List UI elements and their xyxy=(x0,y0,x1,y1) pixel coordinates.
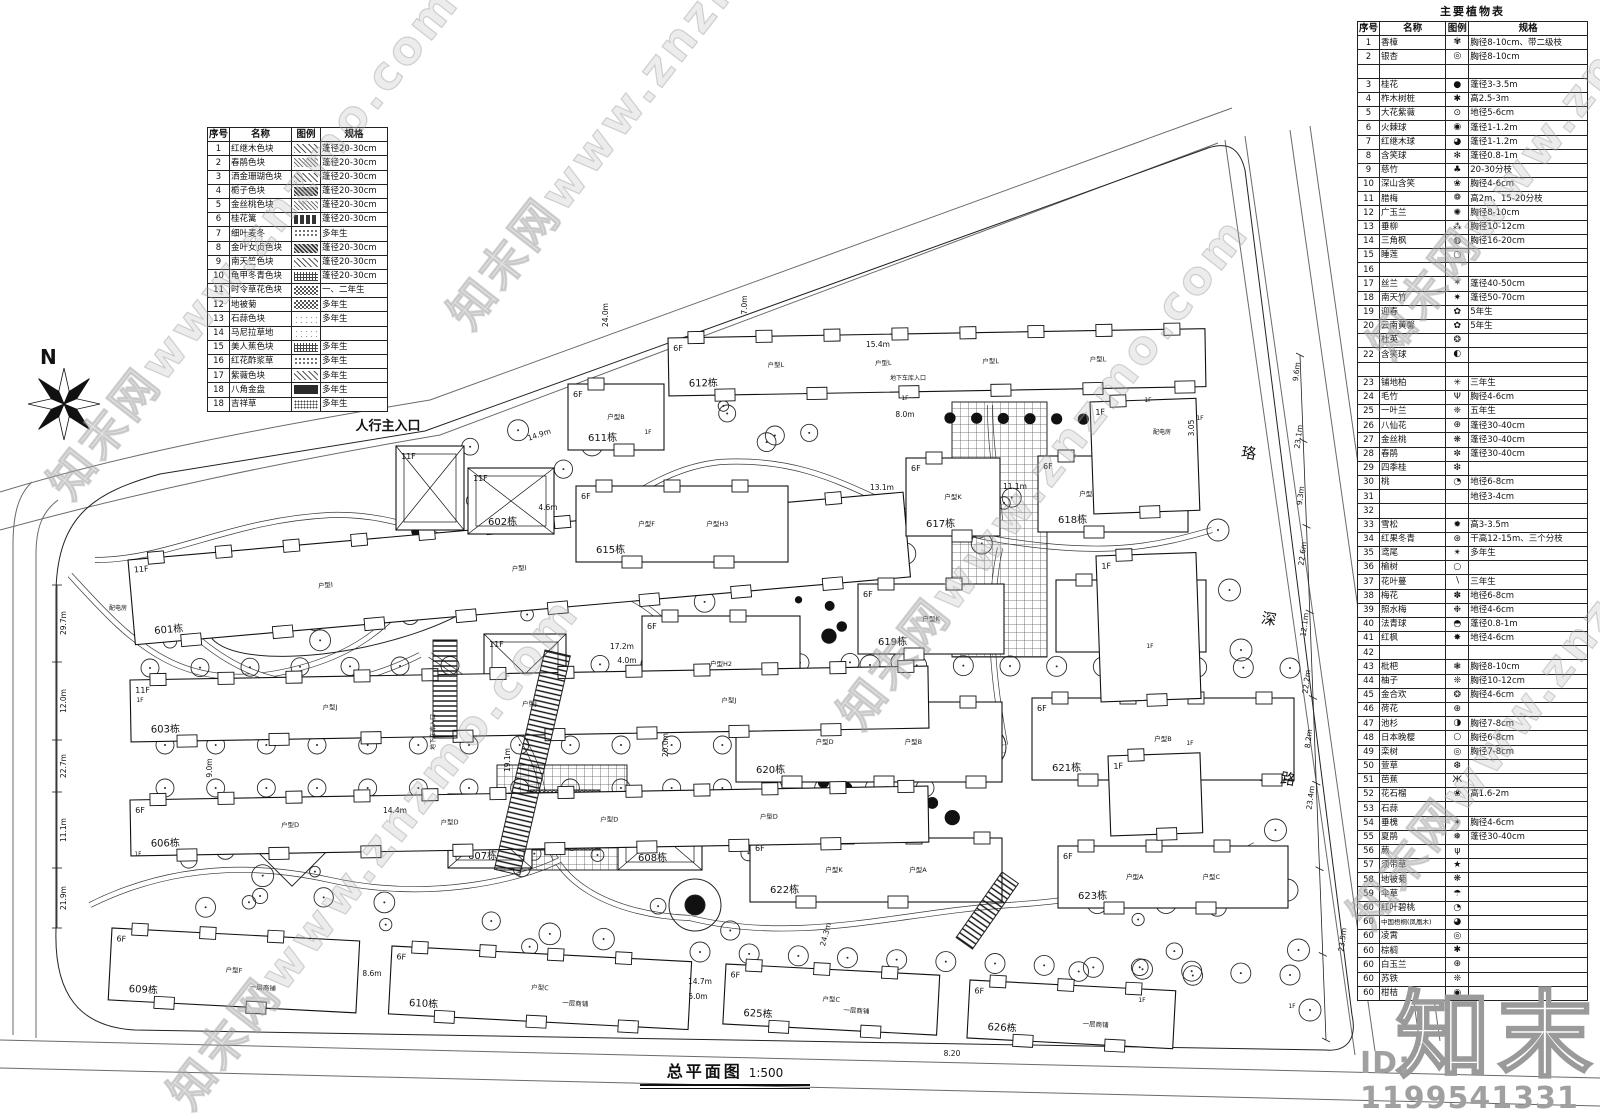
svg-text:8.6m: 8.6m xyxy=(362,969,381,978)
plant-symbol-icon: ❉ xyxy=(1446,603,1469,617)
svg-text:配电房: 配电房 xyxy=(1153,428,1171,436)
plant-symbol-icon: ❀ xyxy=(1446,178,1469,192)
plant-row xyxy=(1358,362,1588,376)
plant-symbol-icon: ◎ xyxy=(1446,745,1469,759)
plant-symbol-icon: ★ xyxy=(1446,859,1469,873)
plant-row: 20云南黄馨✿5年生 xyxy=(1358,319,1588,333)
svg-text:户型D: 户型D xyxy=(760,812,778,821)
legend-swatch-grid xyxy=(294,343,318,352)
plant-symbol-icon: ✻ xyxy=(1446,149,1469,163)
legend-swatch-dense xyxy=(294,187,318,196)
legend-header: 名称 xyxy=(230,128,292,142)
legend-table: 序号名称图例规格1红继木色块蓬径20-30cm2春鹃色块蓬径20-30cm3洒金… xyxy=(207,127,388,412)
legend-row: 2春鹃色块蓬径20-30cm xyxy=(208,156,388,170)
plant-row: 43枇杷❃胸径8-10cm xyxy=(1358,660,1588,674)
plant-row: 11腊梅❁高2m、15-20分枝 xyxy=(1358,192,1588,206)
plant-symbol-icon: ❆ xyxy=(1446,759,1469,773)
plant-row: 34红果冬青⊛干高12-15m、三个分枝 xyxy=(1358,532,1588,546)
plant-symbol-icon: ◐ xyxy=(1446,348,1469,362)
plant-symbol-icon: ◓ xyxy=(1446,617,1469,631)
svg-text:户型B: 户型B xyxy=(905,737,922,746)
legend-row: 13石蒜色块多年生 xyxy=(208,312,388,326)
image-id-text: ID: 1199541331 xyxy=(1360,1046,1600,1116)
svg-text:户型L: 户型L xyxy=(982,356,999,365)
plant-row: 50萱草❆ xyxy=(1358,759,1588,773)
legend-swatch-speck xyxy=(294,329,318,338)
plant-row: 2银杏◎胸径8-10cm xyxy=(1358,50,1588,64)
svg-text:配电房: 配电房 xyxy=(109,604,127,612)
svg-text:12.0m: 12.0m xyxy=(59,689,68,713)
legend-swatch-hatch2 xyxy=(294,201,318,210)
plant-symbol-icon: Ψ xyxy=(1446,390,1469,404)
plant-row: 35鸢尾✴多年生 xyxy=(1358,546,1588,560)
svg-text:户型L: 户型L xyxy=(767,360,784,369)
svg-text:户型F: 户型F xyxy=(225,965,242,975)
legend-swatch-check xyxy=(294,300,318,309)
plant-row: 49栾树◎胸径7-8cm xyxy=(1358,745,1588,759)
svg-text:6F: 6F xyxy=(1037,704,1047,713)
svg-text:615栋: 615栋 xyxy=(596,543,625,556)
svg-text:4.0m: 4.0m xyxy=(617,656,636,665)
svg-text:1F: 1F xyxy=(1288,1003,1296,1010)
svg-text:1F: 1F xyxy=(136,697,144,704)
plant-row: 60中国梧桐(凤凰木)◕ xyxy=(1358,915,1588,929)
plant-symbol-icon xyxy=(1446,64,1469,78)
svg-text:深: 深 xyxy=(1260,609,1278,629)
plant-symbol-icon: ❋ xyxy=(1446,433,1469,447)
legend-header: 规格 xyxy=(321,128,388,142)
plant-symbol-icon: ✾ xyxy=(1446,36,1469,50)
svg-text:户型F: 户型F xyxy=(638,519,655,528)
plant-symbol-icon: ◕ xyxy=(1446,135,1469,149)
legend-swatch-dotsf xyxy=(294,400,318,409)
svg-text:1F: 1F xyxy=(1144,397,1152,404)
svg-text:人行主入口: 人行主入口 xyxy=(355,418,420,434)
plant-symbol-icon: ◎ xyxy=(1446,930,1469,944)
legend-row: 4栀子色块蓬径20-30cm xyxy=(208,184,388,198)
plant-symbol-icon: ✽ xyxy=(1446,589,1469,603)
plant-symbol-icon: ✴ xyxy=(1446,546,1469,560)
svg-text:23.1m: 23.1m xyxy=(1293,424,1305,449)
svg-text:户型I: 户型I xyxy=(318,580,334,590)
svg-text:户型L: 户型L xyxy=(1090,354,1107,363)
plant-row: 32 xyxy=(1358,504,1588,518)
plant-table: 主要植物表 序号名称图例规格1香樟✾胸径8-10cm、带二级枝2银杏◎胸径8-1… xyxy=(1357,3,1588,1001)
svg-text:1F: 1F xyxy=(1186,740,1194,747)
plant-symbol-icon: ● xyxy=(1446,78,1469,92)
sheet-scale: 1:500 xyxy=(749,1066,784,1080)
plant-row: 60白玉兰⊕ xyxy=(1358,958,1588,972)
plant-symbol-icon: ⊙ xyxy=(1446,107,1469,121)
legend-row: 8金叶女贞色块蓬径20-30cm xyxy=(208,241,388,255)
plant-row: 30桃◔地径6-8cm xyxy=(1358,476,1588,490)
legend-row: 1红继木色块蓬径20-30cm xyxy=(208,142,388,156)
svg-text:N: N xyxy=(40,345,57,369)
svg-text:1F: 1F xyxy=(1196,415,1204,422)
plant-row: 59伞草☂ xyxy=(1358,887,1588,901)
svg-text:户型C: 户型C xyxy=(1203,872,1221,881)
legend-row: 7细叶麦冬多年生 xyxy=(208,227,388,241)
svg-text:6F: 6F xyxy=(911,464,921,473)
plant-symbol-icon: ✺ xyxy=(1446,206,1469,220)
plant-symbol-icon xyxy=(1446,802,1469,816)
plant-row: 60棕榈✱ xyxy=(1358,944,1588,958)
legend-swatch-hatch xyxy=(294,258,318,267)
svg-text:户型A: 户型A xyxy=(909,865,927,874)
plant-symbol-icon: ⊕ xyxy=(1446,958,1469,972)
svg-text:8.20: 8.20 xyxy=(944,1049,961,1058)
svg-text:12.1m: 12.1m xyxy=(1299,612,1311,637)
svg-text:14.4m: 14.4m xyxy=(383,806,407,815)
plant-row: 6火棘球◉蓬径1-1.2m xyxy=(1358,121,1588,135)
legend-row: 16红花酢浆草多年生 xyxy=(208,355,388,369)
svg-text:620栋: 620栋 xyxy=(756,763,785,776)
plant-table-title: 主要植物表 xyxy=(1357,3,1588,19)
svg-text:一层商铺: 一层商铺 xyxy=(250,982,277,992)
plant-symbol-icon: ❀ xyxy=(1446,788,1469,802)
plant-symbol-icon xyxy=(1446,504,1469,518)
title-underline xyxy=(640,1084,810,1086)
svg-text:11F: 11F xyxy=(489,640,504,649)
plant-row: 1香樟✾胸径8-10cm、带二级枝 xyxy=(1358,36,1588,50)
plant-symbol-icon: ❅ xyxy=(1446,830,1469,844)
legend-table: 序号名称图例规格1红继木色块蓬径20-30cm2春鹃色块蓬径20-30cm3洒金… xyxy=(207,127,388,412)
plant-symbol-icon: ◔ xyxy=(1446,476,1469,490)
svg-text:户型D: 户型D xyxy=(600,814,618,823)
svg-text:619栋: 619栋 xyxy=(878,635,907,648)
plant-row: 38梅花✽地径6-8cm xyxy=(1358,589,1588,603)
plant-row: 47池杉◑胸径7-8cm xyxy=(1358,717,1588,731)
svg-text:1F: 1F xyxy=(1113,761,1123,770)
plant-row: 56蕨ψ xyxy=(1358,844,1588,858)
legend-swatch-solid xyxy=(294,385,318,394)
plant-symbol-icon: ◍ xyxy=(1446,234,1469,248)
plant-row: 16 xyxy=(1358,263,1588,277)
svg-text:20.0m: 20.0m xyxy=(661,733,670,757)
svg-text:1F: 1F xyxy=(901,395,909,402)
plant-row: 52花石榴❀高1.6-2m xyxy=(1358,788,1588,802)
svg-text:6F: 6F xyxy=(730,970,741,980)
svg-text:11F: 11F xyxy=(135,686,150,695)
plant-symbol-icon: ○ xyxy=(1446,561,1469,575)
plant-row: 14三角枫◍胸径16-20cm xyxy=(1358,234,1588,248)
svg-text:6F: 6F xyxy=(863,590,873,599)
svg-text:户型K: 户型K xyxy=(944,492,962,501)
legend-swatch-hatch xyxy=(294,371,318,380)
legend-swatch-dots xyxy=(294,229,318,238)
plant-symbol-icon: ⊛ xyxy=(1446,532,1469,546)
svg-text:6F: 6F xyxy=(974,986,985,996)
svg-text:1F: 1F xyxy=(1138,997,1146,1004)
svg-text:618栋: 618栋 xyxy=(1058,513,1087,526)
svg-text:户型C: 户型C xyxy=(531,982,549,992)
plant-header: 序号 xyxy=(1358,22,1380,36)
legend-row: 12地被菊多年生 xyxy=(208,298,388,312)
legend-header: 图例 xyxy=(292,128,321,142)
svg-text:11.1m: 11.1m xyxy=(59,818,68,842)
svg-text:户型D: 户型D xyxy=(441,817,459,826)
plant-row: 28春鹃✼蓬径30-40cm xyxy=(1358,447,1588,461)
plant-symbol-icon: ∖ xyxy=(1446,575,1469,589)
plant-symbol-icon xyxy=(1446,362,1469,376)
svg-text:户型K: 户型K xyxy=(825,865,843,874)
plant-header: 图例 xyxy=(1446,22,1469,36)
legend-swatch-speck xyxy=(294,315,318,324)
plant-row: 5大花紫薇⊙地径5-6cm xyxy=(1358,107,1588,121)
plant-symbol-icon: ❁ xyxy=(1446,192,1469,206)
plant-row: 10深山含笑❀胸径4-6cm xyxy=(1358,178,1588,192)
plant-row: 24毛竹Ψ胸径4-6cm xyxy=(1358,390,1588,404)
plant-symbol-icon: Ж xyxy=(1446,773,1469,787)
plant-row: 55夏鹃❅蓬径30-40cm xyxy=(1358,830,1588,844)
plant-header: 规格 xyxy=(1469,22,1588,36)
svg-text:9.0m: 9.0m xyxy=(205,758,214,777)
plant-row: 26八仙花⊕蓬径30-40cm xyxy=(1358,419,1588,433)
svg-text:622栋: 622栋 xyxy=(770,883,799,896)
svg-text:4.6m: 4.6m xyxy=(538,503,557,512)
plant-row: 51芭蕉Ж xyxy=(1358,773,1588,787)
legend-header: 序号 xyxy=(208,128,230,142)
svg-text:23.4m: 23.4m xyxy=(1305,785,1317,810)
plant-symbol-icon: ⊕ xyxy=(1446,703,1469,717)
plant-row: 17丝兰✶蓬径40-50cm xyxy=(1358,277,1588,291)
svg-text:621栋: 621栋 xyxy=(1052,761,1081,774)
svg-text:户型A: 户型A xyxy=(1126,872,1144,881)
plant-symbol-icon: ⁂ xyxy=(1446,220,1469,234)
legend-row: 18八角金盘多年生 xyxy=(208,383,388,397)
plant-symbol-icon: ◉ xyxy=(1446,121,1469,135)
svg-text:8.2m: 8.2m xyxy=(1303,729,1314,749)
plant-row: 53石蒜 xyxy=(1358,802,1588,816)
plant-row: 19迎春✿5年生 xyxy=(1358,305,1588,319)
svg-text:22.6m: 22.6m xyxy=(1297,541,1309,566)
svg-text:1F: 1F xyxy=(1095,407,1105,416)
plant-symbol-icon: ❊ xyxy=(1446,972,1469,986)
plant-row: 3桂花●蓬径3-3.5m xyxy=(1358,78,1588,92)
svg-text:一层商铺: 一层商铺 xyxy=(843,1005,870,1015)
plant-row: 9慈竹♣20-30分枝 xyxy=(1358,163,1588,177)
svg-text:5.0m: 5.0m xyxy=(688,992,707,1001)
plant-symbol-icon: ❇ xyxy=(1446,461,1469,475)
plant-symbol-icon: ✳ xyxy=(1446,376,1469,390)
svg-text:23.5m: 23.5m xyxy=(1337,927,1349,952)
plant-row: 37花叶蔓∖三年生 xyxy=(1358,575,1588,589)
legend-row: 5金丝桃色块蓬径20-30cm xyxy=(208,198,388,212)
svg-text:一层商铺: 一层商铺 xyxy=(1082,1019,1109,1029)
plant-row: 22含笑球◐ xyxy=(1358,348,1588,362)
legend-swatch-check xyxy=(294,286,318,295)
legend-swatch-grid xyxy=(294,272,318,281)
plant-row: 23铺地柏✳三年生 xyxy=(1358,376,1588,390)
plant-symbol-icon: ψ xyxy=(1446,844,1469,858)
plant-row: 13垂柳⁂胸径10-12cm xyxy=(1358,220,1588,234)
svg-text:15.4m: 15.4m xyxy=(866,340,890,349)
plant-symbol-icon: ⊕ xyxy=(1446,419,1469,433)
plant-symbol-icon: ❃ xyxy=(1446,660,1469,674)
plant-row xyxy=(1358,64,1588,78)
svg-text:14.7m: 14.7m xyxy=(688,977,712,986)
svg-text:6F: 6F xyxy=(573,390,583,399)
plant-row: 27金丝桃❋蓬径30-40cm xyxy=(1358,433,1588,447)
legend-row: 10龟甲冬青色块蓬径20-30cm xyxy=(208,269,388,283)
legend-swatch-hatch xyxy=(294,173,318,182)
svg-text:户型D: 户型D xyxy=(281,820,299,829)
plant-row: 杜英❂ xyxy=(1358,334,1588,348)
svg-text:户型J: 户型J xyxy=(322,702,337,711)
legend-row: 14马尼拉草地 xyxy=(208,326,388,340)
plant-symbol-icon: ❂ xyxy=(1446,688,1469,702)
plant-symbol-icon: ◕ xyxy=(1446,915,1469,929)
plant-symbol-icon: ✿ xyxy=(1446,305,1469,319)
svg-text:6F: 6F xyxy=(673,344,683,353)
plant-row: 31地径3-4cm xyxy=(1358,490,1588,504)
plant-symbol-icon: ◔ xyxy=(1446,901,1469,915)
plant-symbol-icon: ◑ xyxy=(1446,717,1469,731)
plant-row: 60苏铁❊ xyxy=(1358,972,1588,986)
svg-text:29.7m: 29.7m xyxy=(59,611,68,635)
plant-row: 36榆树○ xyxy=(1358,561,1588,575)
legend-swatch-dots xyxy=(294,357,318,366)
plant-row: 39照水梅❉地径4-6cm xyxy=(1358,603,1588,617)
legend-swatch-dash xyxy=(294,215,318,224)
plant-symbol-icon xyxy=(1446,490,1469,504)
plant-symbol-icon: ✱ xyxy=(1446,944,1469,958)
svg-text:9.3m: 9.3m xyxy=(1295,486,1306,506)
plant-symbol-icon: ❋ xyxy=(1446,873,1469,887)
plant-row: 7红继木球◕蓬径1-1.2m xyxy=(1358,135,1588,149)
plant-row: 8含笑球✻蓬径0.8-1m xyxy=(1358,149,1588,163)
plant-row: 44柚子❊胸径10-12cm xyxy=(1358,674,1588,688)
plant-row: 4柞木树桩✱高2.5-3m xyxy=(1358,92,1588,106)
svg-text:617栋: 617栋 xyxy=(926,517,955,530)
plant-header: 名称 xyxy=(1380,22,1446,36)
plant-symbol-icon: ♣ xyxy=(1446,163,1469,177)
svg-text:606栋: 606栋 xyxy=(151,836,180,850)
plant-row: 29四季桂❇ xyxy=(1358,461,1588,475)
svg-text:一层商铺: 一层商铺 xyxy=(562,998,589,1008)
plant-row: 57须带草★ xyxy=(1358,859,1588,873)
svg-text:户型H3: 户型H3 xyxy=(706,519,728,528)
plant-symbol-icon xyxy=(1446,263,1469,277)
svg-text:623栋: 623栋 xyxy=(1078,889,1107,902)
plant-symbol-icon xyxy=(1446,646,1469,660)
svg-text:6F: 6F xyxy=(116,934,127,944)
plant-symbol-icon: ◎ xyxy=(1446,50,1469,64)
svg-text:珞: 珞 xyxy=(1240,443,1258,463)
svg-text:户型C: 户型C xyxy=(822,994,840,1004)
svg-text:7.0m: 7.0m xyxy=(740,295,749,314)
legend-swatch-hatch2 xyxy=(294,158,318,167)
svg-text:6F: 6F xyxy=(1043,462,1053,471)
legend-row: 3洒金珊瑚色块蓬径20-30cm xyxy=(208,170,388,184)
svg-text:11F: 11F xyxy=(473,474,488,483)
plant-row: 41红枫✸地径4-6cm xyxy=(1358,632,1588,646)
svg-text:6F: 6F xyxy=(581,492,591,501)
plant-table: 序号名称图例规格1香樟✾胸径8-10cm、带二级枝2银杏◎胸径8-10cm3桂花… xyxy=(1357,21,1588,1001)
plant-row: 45金合欢❂胸径4-6cm xyxy=(1358,688,1588,702)
plant-symbol-icon: ❈ xyxy=(1446,405,1469,419)
plant-row: 48日本晚樱○胸径6-8cm xyxy=(1358,731,1588,745)
svg-text:9.6m: 9.6m xyxy=(1291,362,1302,382)
plant-symbol-icon: ✷ xyxy=(1446,291,1469,305)
plant-row: 15睡莲○ xyxy=(1358,249,1588,263)
svg-text:11F: 11F xyxy=(134,564,150,574)
svg-text:户型L: 户型L xyxy=(875,358,892,367)
svg-text:19.1m: 19.1m xyxy=(503,748,512,772)
legend-swatch-dense xyxy=(294,244,318,253)
svg-text:13.1m: 13.1m xyxy=(870,483,894,492)
plant-row: 25一叶兰❈五年生 xyxy=(1358,405,1588,419)
svg-text:602栋: 602栋 xyxy=(488,515,517,528)
svg-text:户型H2: 户型H2 xyxy=(710,659,732,668)
plant-symbol-icon: ✿ xyxy=(1446,319,1469,333)
plant-symbol-icon: ✱ xyxy=(1446,92,1469,106)
svg-text:6F: 6F xyxy=(1063,852,1073,861)
plant-symbol-icon: ❂ xyxy=(1446,334,1469,348)
svg-text:6F: 6F xyxy=(647,622,657,631)
svg-text:6F: 6F xyxy=(396,952,407,962)
plant-row: 60红叶碧桃◔ xyxy=(1358,901,1588,915)
svg-text:地下车库入口: 地下车库入口 xyxy=(429,714,437,750)
svg-text:603栋: 603栋 xyxy=(151,722,180,736)
plant-row: 40法青球◓蓬径0.8-1m xyxy=(1358,617,1588,631)
svg-text:地下车库入口: 地下车库入口 xyxy=(890,374,926,382)
legend-row: 15美人蕉色块多年生 xyxy=(208,340,388,354)
svg-text:户型D: 户型D xyxy=(816,737,834,746)
legend-swatch-hatch xyxy=(294,144,318,153)
plant-symbol-icon: ☂ xyxy=(1446,887,1469,901)
title-underline-2 xyxy=(640,1088,810,1089)
plant-symbol-icon: ✶ xyxy=(1446,816,1469,830)
plant-row: 33雪松✹高3-3.5m xyxy=(1358,518,1588,532)
legend-row: 9南天竺色块蓬径20-30cm xyxy=(208,255,388,269)
plant-symbol-icon: ○ xyxy=(1446,249,1469,263)
legend-row: 18吉祥草多年生 xyxy=(208,397,388,411)
svg-text:612栋: 612栋 xyxy=(689,376,718,390)
plant-row: 18南天竹✷蓬径50-70cm xyxy=(1358,291,1588,305)
svg-text:17.2m: 17.2m xyxy=(610,642,634,651)
plant-symbol-icon: ✼ xyxy=(1446,447,1469,461)
svg-text:户型B: 户型B xyxy=(607,412,624,421)
svg-text:11F: 11F xyxy=(401,452,416,461)
plant-symbol-icon: ❊ xyxy=(1446,674,1469,688)
svg-text:1F: 1F xyxy=(1146,643,1154,650)
svg-text:路: 路 xyxy=(1279,769,1297,789)
legend-row: 17紫薇色块多年生 xyxy=(208,369,388,383)
svg-text:1F: 1F xyxy=(1101,561,1111,570)
svg-text:1F: 1F xyxy=(644,429,652,436)
plant-row: 12广玉兰✺胸径8-10cm xyxy=(1358,206,1588,220)
svg-text:1F: 1F xyxy=(134,851,142,858)
plant-row: 42 xyxy=(1358,646,1588,660)
plant-row: 46荷花⊕ xyxy=(1358,703,1588,717)
svg-text:21.9m: 21.9m xyxy=(59,886,68,910)
svg-text:14.9m: 14.9m xyxy=(526,427,552,443)
sheet-title-text: 总平面图 xyxy=(667,1058,743,1082)
svg-text:24.0m: 24.0m xyxy=(601,303,610,327)
plant-row: 60凌霄◎ xyxy=(1358,930,1588,944)
cad-sheet: { "watermark":{"text":"知末网www.znzmo.com"… xyxy=(0,0,1600,1119)
svg-text:22.7m: 22.7m xyxy=(59,754,68,778)
svg-text:户型K: 户型K xyxy=(922,614,940,623)
svg-text:8.0m: 8.0m xyxy=(895,410,914,419)
plant-symbol-icon: ◉ xyxy=(1446,986,1469,1000)
svg-text:611栋: 611栋 xyxy=(588,431,617,444)
sheet-title: 总平面图1:500 xyxy=(640,1058,810,1089)
plant-row: 60柑桔◉ xyxy=(1358,986,1588,1000)
legend-row: 6桂花篱蓬径20-30cm xyxy=(208,213,388,227)
svg-text:户型J: 户型J xyxy=(721,695,736,704)
